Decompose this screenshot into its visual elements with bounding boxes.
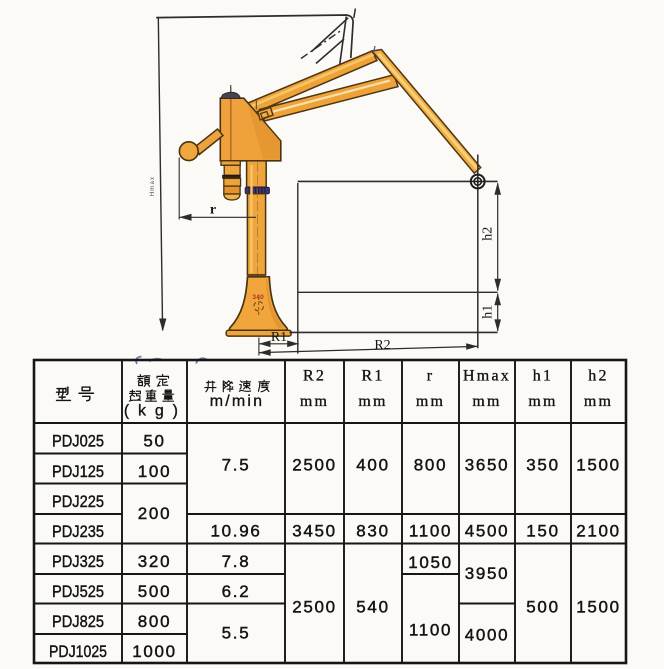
svg-text:350: 350 <box>526 455 559 474</box>
svg-text:h2: h2 <box>480 227 495 241</box>
svg-text:R2: R2 <box>374 338 390 353</box>
svg-text:2500: 2500 <box>292 598 337 617</box>
svg-text:R1: R1 <box>361 368 384 385</box>
svg-text:r: r <box>427 368 435 385</box>
svg-text:R2: R2 <box>303 368 326 385</box>
svg-text:1500: 1500 <box>576 598 621 617</box>
svg-text:h1: h1 <box>533 368 553 385</box>
svg-text:100: 100 <box>138 462 171 481</box>
svg-text:5.5: 5.5 <box>222 624 251 643</box>
svg-text:h1: h1 <box>480 305 495 319</box>
svg-text:540: 540 <box>356 598 389 617</box>
svg-text:150: 150 <box>526 522 559 541</box>
svg-text:PDJ525: PDJ525 <box>52 582 104 601</box>
svg-text:320: 320 <box>138 552 171 571</box>
svg-text:mm: mm <box>300 393 329 410</box>
svg-text:PDJ1025: PDJ1025 <box>49 642 107 661</box>
svg-text:1500: 1500 <box>576 455 621 474</box>
svg-text:2100: 2100 <box>576 522 621 541</box>
svg-text:500: 500 <box>526 598 559 617</box>
svg-text:500: 500 <box>138 582 171 601</box>
svg-text:PDJ125: PDJ125 <box>52 462 104 481</box>
svg-text:mm: mm <box>584 393 613 410</box>
svg-text:2500: 2500 <box>292 455 337 474</box>
svg-text:10.96: 10.96 <box>210 522 261 541</box>
svg-text:PDJ025: PDJ025 <box>52 432 104 451</box>
svg-text:( k g ): ( k g ) <box>124 403 180 420</box>
svg-text:mm: mm <box>528 393 557 410</box>
svg-text:Hmax: Hmax <box>463 368 511 385</box>
svg-text:PDJ325: PDJ325 <box>52 552 104 571</box>
svg-text:PDJ235: PDJ235 <box>52 522 104 541</box>
svg-text:4500: 4500 <box>465 522 510 541</box>
svg-text:1050: 1050 <box>408 553 453 572</box>
svg-text:200: 200 <box>138 504 171 523</box>
svg-text:6.2: 6.2 <box>222 582 251 601</box>
svg-text:r: r <box>210 203 216 218</box>
svg-text:1000: 1000 <box>132 642 177 661</box>
svg-text:50: 50 <box>143 432 165 451</box>
svg-text:7.5: 7.5 <box>222 455 251 474</box>
svg-text:3450: 3450 <box>292 522 337 541</box>
svg-text:PDJ225: PDJ225 <box>52 492 104 511</box>
svg-text:mm: mm <box>358 393 387 410</box>
svg-text:1100: 1100 <box>409 621 452 640</box>
svg-text:mm: mm <box>416 393 445 410</box>
svg-text:PDJ825: PDJ825 <box>52 612 104 631</box>
svg-text:400: 400 <box>356 455 389 474</box>
svg-text:4000: 4000 <box>465 626 510 645</box>
svg-text:3650: 3650 <box>465 455 510 474</box>
svg-text:830: 830 <box>356 522 389 541</box>
svg-text:1100: 1100 <box>409 522 452 541</box>
svg-text:R1: R1 <box>271 330 287 345</box>
svg-text:m/min: m/min <box>210 393 265 410</box>
svg-text:Hmax: Hmax <box>150 176 156 196</box>
svg-text:340: 340 <box>252 294 264 301</box>
svg-text:3950: 3950 <box>465 564 510 583</box>
svg-text:800: 800 <box>138 612 171 631</box>
svg-text:800: 800 <box>414 455 447 474</box>
svg-text:7.8: 7.8 <box>222 552 251 571</box>
svg-text:mm: mm <box>472 393 501 410</box>
svg-text:h2: h2 <box>588 368 608 385</box>
